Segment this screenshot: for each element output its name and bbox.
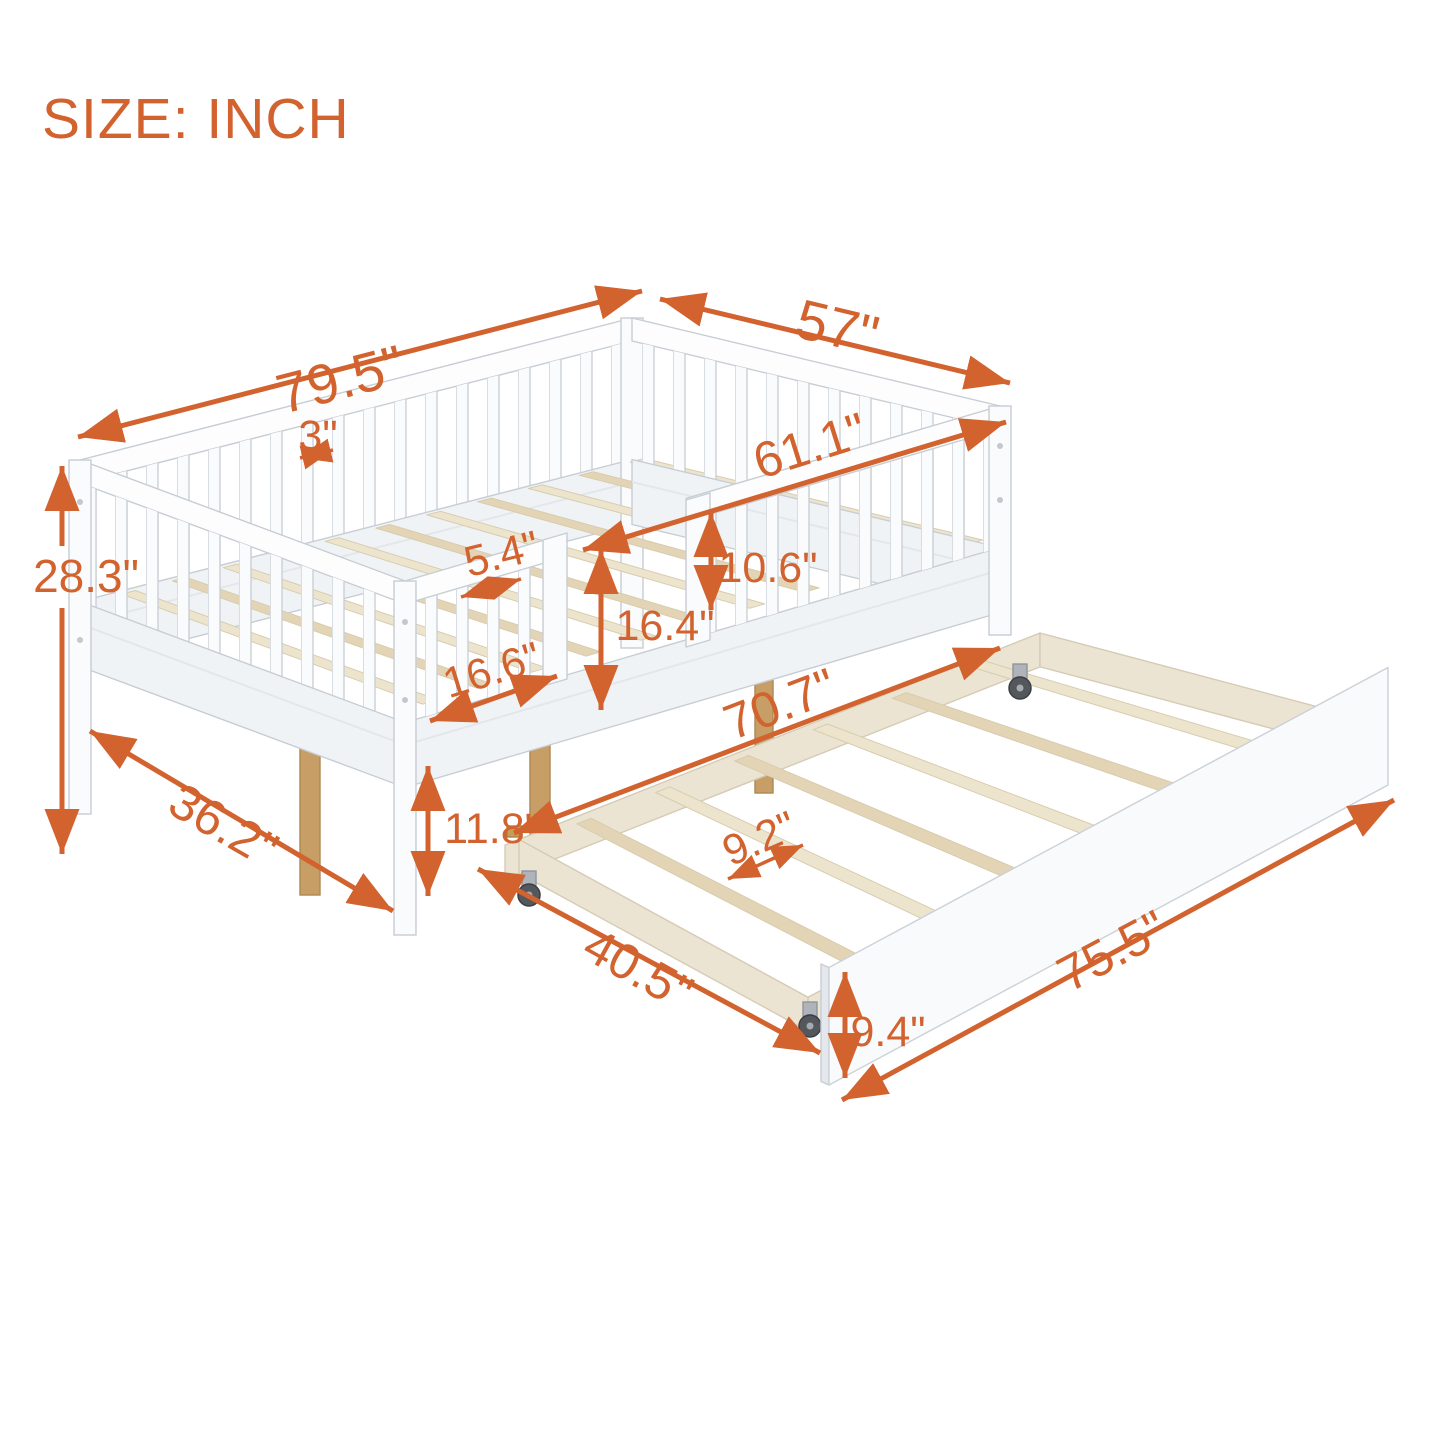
dim-end-width: 36.2" [160,772,288,878]
dim-trundle-slat-spacing: 9.2" [716,802,804,876]
page-title: SIZE: INCH [42,87,350,151]
bed-corner-post-back-left [69,460,91,814]
dim-rail-slat-gap: 3" [298,412,337,460]
dim-bed-height: 28.3" [33,550,139,602]
dim-bed-width: 57" [790,287,885,367]
bed-corner-post-front-right [989,406,1011,635]
dim-under-bed-clearance: 11.8" [444,805,540,853]
dim-guardrail-height: 16.4" [616,602,715,650]
bed-dimension-diagram: 79.5" 57" 3" 61.1" 28.3" 5.4" 10.6" 16.4… [0,0,1445,1445]
diagram-canvas: 79.5" 57" 3" 61.1" 28.3" 5.4" 10.6" 16.4… [0,0,1445,1445]
dim-guardrail-above-deck: 10.6" [719,544,818,592]
bed-corner-post-front-left [394,581,416,935]
dim-trundle-panel-height: 9.4" [850,1008,925,1056]
